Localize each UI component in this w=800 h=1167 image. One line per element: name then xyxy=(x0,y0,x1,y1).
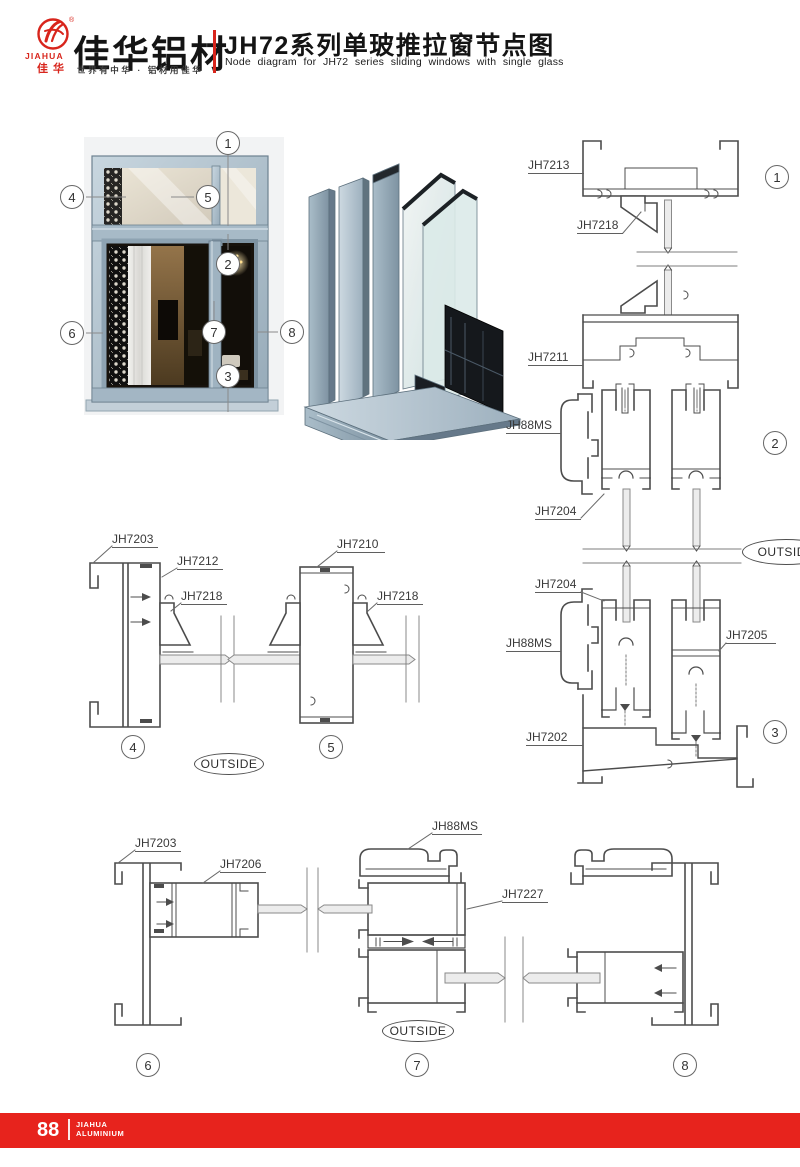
vertical-section-drawing xyxy=(495,120,800,800)
part-label-jh88ms-s7: JH88MS xyxy=(432,820,482,835)
part-label-jh7211: JH7211 xyxy=(528,351,583,366)
section-marker-1: 1 xyxy=(765,165,789,189)
part-label-jh7204-s3: JH7204 xyxy=(535,578,581,593)
footer-brand-line1: JIAHUA xyxy=(76,1120,108,1129)
section-marker-8: 8 xyxy=(673,1053,697,1077)
brand-tagline: 世界有中华 · 铝材用佳华 xyxy=(77,64,203,76)
part-label-jh7203-s6: JH7203 xyxy=(135,837,181,852)
part-label-jh7210: JH7210 xyxy=(337,538,385,553)
part-label-jh7205: JH7205 xyxy=(726,629,776,644)
logo-brand-cn: 佳华 xyxy=(37,60,69,76)
section-marker-6: 6 xyxy=(136,1053,160,1077)
callout-5: 5 xyxy=(196,185,220,209)
callout-7: 7 xyxy=(202,320,226,344)
section-marker-3: 3 xyxy=(763,720,787,744)
callout-4: 4 xyxy=(60,185,84,209)
callout-1: 1 xyxy=(216,131,240,155)
section-marker-4: 4 xyxy=(121,735,145,759)
part-label-jh7218-s4: JH7218 xyxy=(181,590,227,605)
callout-3: 3 xyxy=(216,364,240,388)
outside-label-mid: OUTSIDE xyxy=(194,753,264,775)
part-label-jh7204-s2: JH7204 xyxy=(535,505,581,520)
part-label-jh88ms-s3: JH88MS xyxy=(506,637,561,652)
callout-2: 2 xyxy=(216,252,240,276)
page-number: 88 xyxy=(37,1119,59,1142)
footer-brand-line2: ALUMINIUM xyxy=(76,1129,124,1138)
footer-divider xyxy=(68,1119,70,1140)
jiahua-logo-icon: ® xyxy=(33,14,75,52)
doc-title-en: Node diagram for JH72 series sliding win… xyxy=(225,56,564,68)
reg-mark: ® xyxy=(69,16,75,24)
section-marker-7: 7 xyxy=(405,1053,429,1077)
part-label-jh7227: JH7227 xyxy=(502,888,548,903)
part-label-jh7206: JH7206 xyxy=(220,858,266,873)
part-label-jh88ms-s2: JH88MS xyxy=(506,419,561,434)
part-label-jh7218-s5: JH7218 xyxy=(377,590,423,605)
window-photo-figure xyxy=(55,128,310,428)
header-divider xyxy=(213,30,216,73)
part-label-jh7203-s4: JH7203 xyxy=(112,533,158,548)
callout-6: 6 xyxy=(60,321,84,345)
part-label-jh7218-s1: JH7218 xyxy=(577,219,623,234)
part-label-jh7202: JH7202 xyxy=(526,731,583,746)
part-label-jh7213: JH7213 xyxy=(528,159,584,174)
catalog-page: ® JIAHUA 佳华 佳华铝材 世界有中华 · 铝材用佳华 JH72系列单玻推… xyxy=(0,0,800,1167)
outside-label-bottom: OUTSIDE xyxy=(382,1020,454,1042)
section-marker-2: 2 xyxy=(763,431,787,455)
section-marker-5: 5 xyxy=(319,735,343,759)
part-label-jh7212: JH7212 xyxy=(177,555,223,570)
